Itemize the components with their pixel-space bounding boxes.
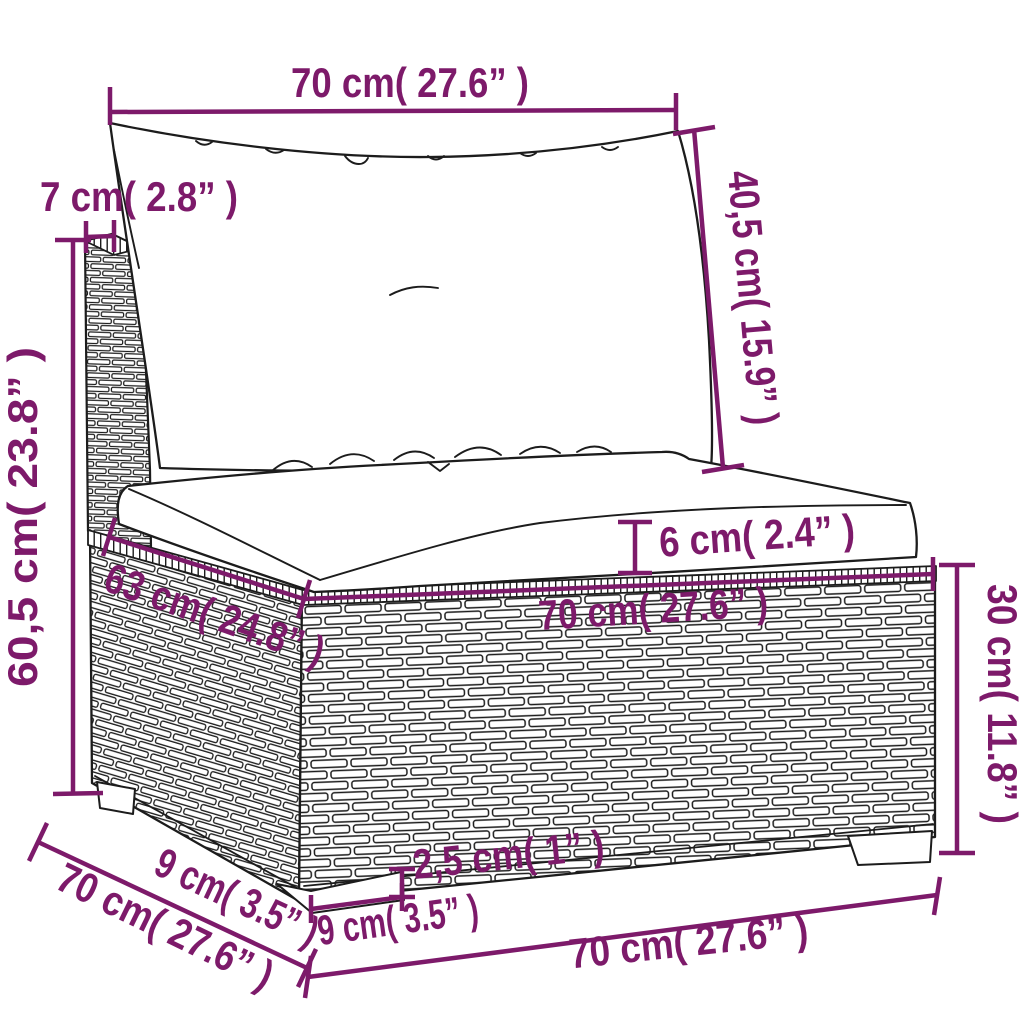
dim-label-frame-thickness: 7 cm( 2.8” ) — [40, 173, 238, 220]
dim-line-base-height — [939, 565, 975, 853]
leg-front-right — [848, 831, 932, 865]
dim-label-back-cushion-height: 40,5 cm( 15.9” ) — [719, 169, 788, 427]
dim-label-base-width: 70 cm( 27.6” ) — [567, 906, 811, 978]
dimension-diagram-svg: 70 cm( 27.6” ) 40,5 cm( 15.9” ) 7 cm( 2.… — [0, 0, 1024, 1024]
dimension-diagram-page: 70 cm( 27.6” ) 40,5 cm( 15.9” ) 7 cm( 2.… — [0, 0, 1024, 1024]
dim-label-total-height: 60,5 cm( 23.8” ) — [0, 347, 46, 687]
dim-label-back-width: 70 cm( 27.6” ) — [291, 59, 529, 106]
dim-label-base-height: 30 cm( 11.8” ) — [979, 584, 1024, 824]
